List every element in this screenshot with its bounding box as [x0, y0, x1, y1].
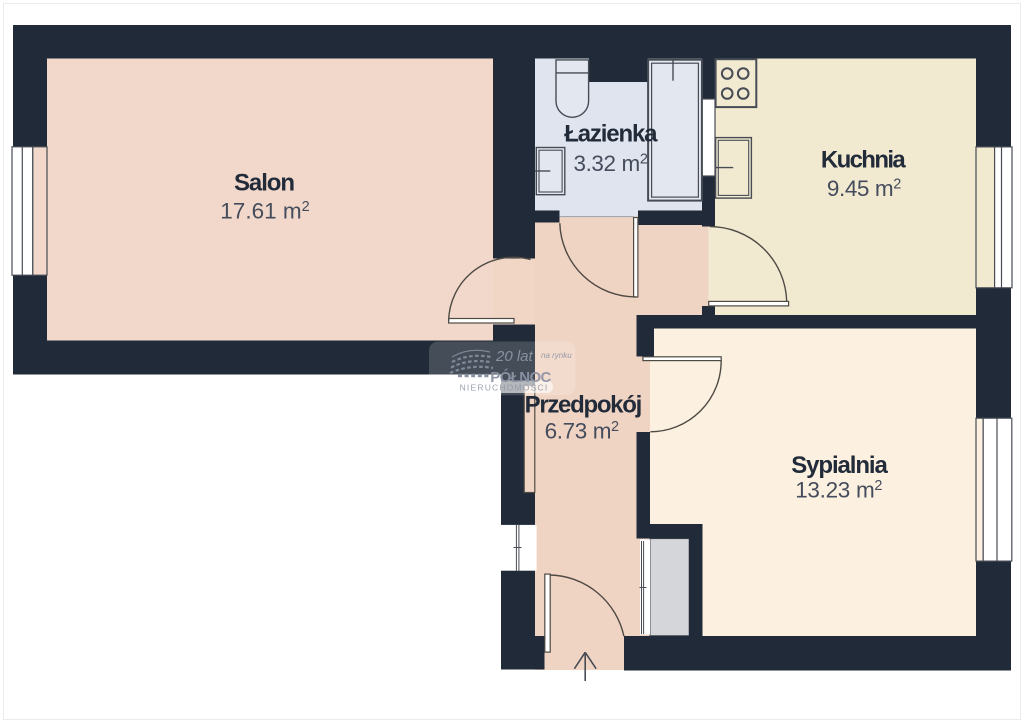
- svg-text:Łazienka: Łazienka: [564, 121, 658, 148]
- svg-text:Salon: Salon: [234, 170, 294, 197]
- svg-text:na rynku: na rynku: [541, 351, 572, 360]
- svg-text:Sypialnia: Sypialnia: [791, 452, 888, 479]
- svg-text:13.23 m2: 13.23 m2: [795, 478, 882, 503]
- svg-text:Kuchnia: Kuchnia: [821, 146, 906, 173]
- svg-text:6.73 m2: 6.73 m2: [545, 419, 619, 444]
- svg-text:9.45 m2: 9.45 m2: [827, 176, 901, 201]
- svg-text:Przedpokój: Przedpokój: [525, 392, 641, 419]
- svg-text:20 lat: 20 lat: [495, 348, 534, 365]
- svg-text:17.61 m2: 17.61 m2: [220, 198, 309, 223]
- svg-text:3.32 m2: 3.32 m2: [573, 151, 647, 176]
